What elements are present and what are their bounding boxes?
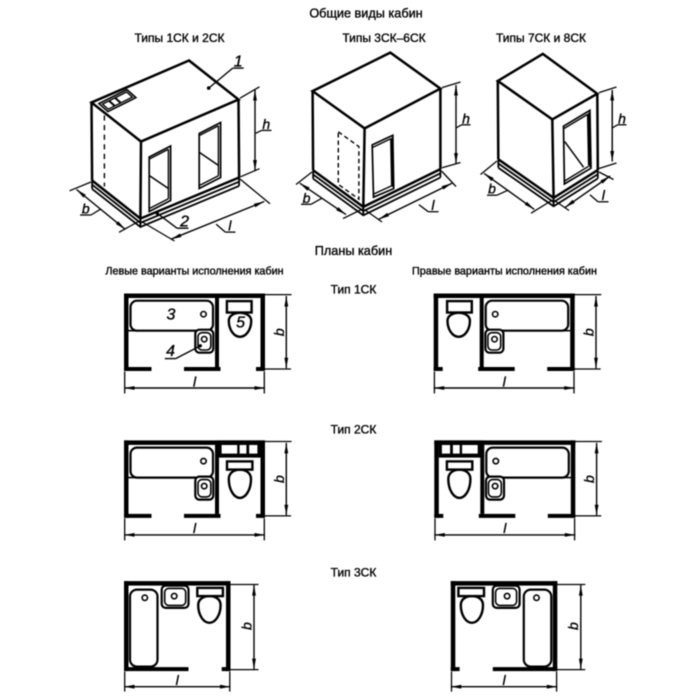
svg-text:h: h [462,110,470,126]
svg-text:5: 5 [236,315,245,332]
svg-text:b: b [271,328,287,336]
svg-text:Левые варианты исполнения каби: Левые варианты исполнения кабин [105,266,283,278]
svg-text:b: b [581,328,597,336]
svg-text:1: 1 [234,53,243,70]
svg-text:4: 4 [166,343,175,360]
svg-text:b: b [271,475,287,483]
svg-text:b: b [565,622,581,630]
svg-text:2: 2 [179,214,189,231]
svg-text:h: h [618,110,626,126]
svg-text:Типы 7СК и 8СК: Типы 7СК и 8СК [496,31,586,45]
svg-text:Тип 3СК: Тип 3СК [331,566,377,580]
svg-text:Правые варианты исполнения каб: Правые варианты исполнения кабин [412,266,597,278]
svg-text:b: b [238,622,254,630]
svg-text:Типы 3СК–6СК: Типы 3СК–6СК [342,31,425,45]
svg-text:b: b [303,190,311,206]
svg-text:Тип 1СК: Тип 1СК [331,283,377,297]
svg-text:Планы кабин: Планы кабин [315,244,392,258]
svg-text:b: b [82,201,90,217]
svg-text:b: b [488,181,496,197]
svg-text:Типы 1СК и 2СК: Типы 1СК и 2СК [135,31,225,45]
svg-text:h: h [262,116,270,132]
svg-text:Тип 2СК: Тип 2СК [331,423,377,437]
svg-text:Общие виды кабин: Общие виды кабин [309,7,422,21]
svg-text:3: 3 [167,307,176,324]
svg-text:b: b [581,475,597,483]
